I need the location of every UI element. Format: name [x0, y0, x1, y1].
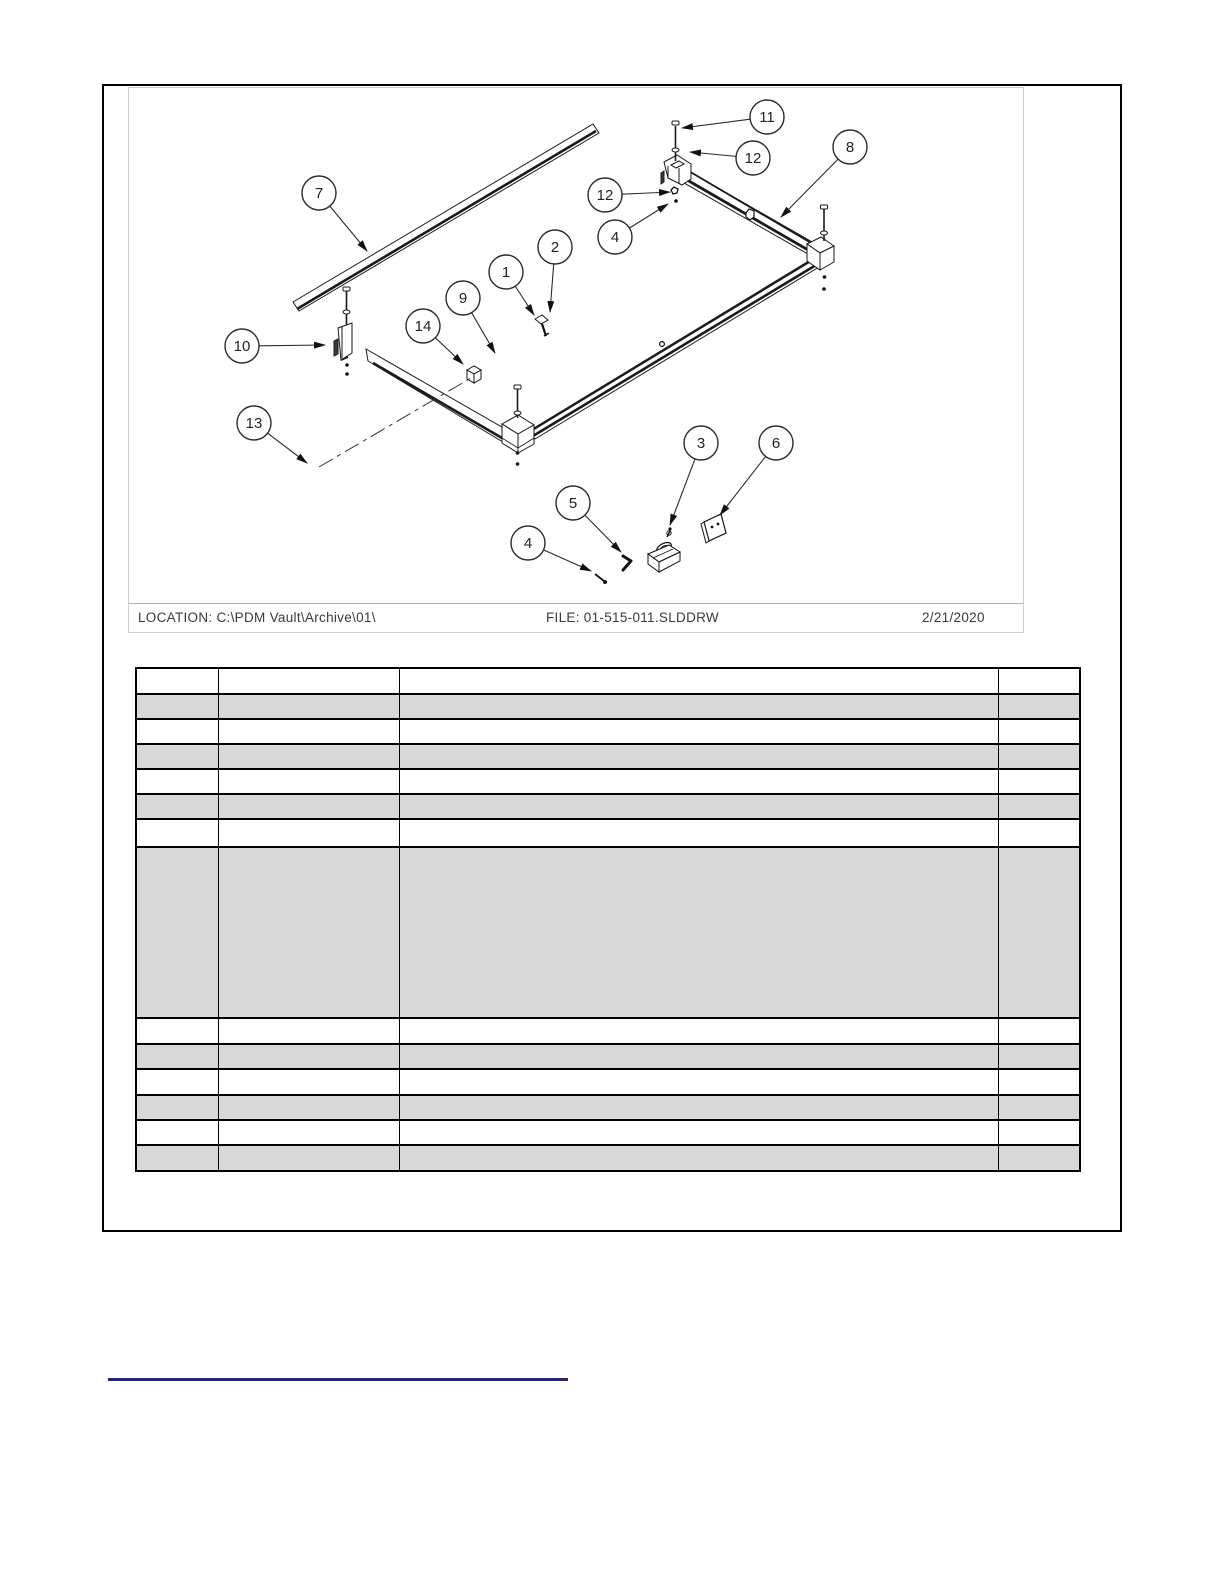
- table-row: [136, 744, 1080, 769]
- weld-nut-rail-8: [746, 209, 754, 220]
- table-row: [136, 794, 1080, 819]
- exploded-view-panel: 7111281242191410133654 LOCATION: C:\PDM …: [128, 87, 1024, 633]
- balloon-number: 5: [569, 495, 577, 512]
- table-cell: [998, 719, 1080, 744]
- rail-bottom-left: [366, 349, 507, 442]
- footer-date: 2/21/2020: [922, 610, 985, 625]
- table-cell: [136, 1145, 218, 1171]
- table-row: [136, 1069, 1080, 1095]
- table-cell: [998, 694, 1080, 719]
- balloon-leader: [781, 159, 838, 217]
- table-cell: [136, 1044, 218, 1069]
- table-cell: [218, 847, 399, 1018]
- latch-3: [648, 527, 680, 572]
- table-row: [136, 1018, 1080, 1044]
- parts-list-table: [135, 667, 1081, 1172]
- manual-page: 7111281242191410133654 LOCATION: C:\PDM …: [0, 0, 1224, 1584]
- table-cell: [136, 794, 218, 819]
- table-cell: [136, 668, 218, 694]
- balloon-number: 8: [846, 139, 854, 156]
- balloon-leader: [435, 338, 463, 364]
- plate-6: [701, 514, 726, 543]
- table-cell: [218, 719, 399, 744]
- table-row: [136, 668, 1080, 694]
- table-cell: [399, 719, 998, 744]
- table-cell: [998, 819, 1080, 847]
- balloon-leader: [550, 264, 554, 312]
- table-cell: [218, 769, 399, 794]
- table-cell: [399, 769, 998, 794]
- table-row: [136, 719, 1080, 744]
- balloon-number: 1: [502, 264, 510, 281]
- table-cell: [218, 1145, 399, 1171]
- fastener-1-2: [535, 315, 549, 336]
- pin-5: [623, 556, 631, 570]
- table-row: [136, 819, 1080, 847]
- balloon-number: 11: [759, 109, 775, 126]
- table-cell: [998, 1018, 1080, 1044]
- table-cell: [136, 847, 218, 1018]
- table-cell: [136, 694, 218, 719]
- balloon-number: 2: [551, 239, 559, 256]
- table-cell: [998, 1120, 1080, 1145]
- table-row: [136, 1044, 1080, 1069]
- table-cell: [399, 847, 998, 1018]
- balloon-leader: [472, 313, 495, 353]
- table-cell: [998, 847, 1080, 1018]
- table-cell: [218, 744, 399, 769]
- table-cell: [998, 668, 1080, 694]
- footnote-rule: [108, 1378, 568, 1381]
- table-cell: [399, 694, 998, 719]
- table-cell: [136, 819, 218, 847]
- table-cell: [399, 1120, 998, 1145]
- table-row: [136, 694, 1080, 719]
- block-14-9: [467, 366, 481, 383]
- rail-bottom-right: [529, 259, 819, 439]
- balloon-leader: [629, 204, 668, 228]
- balloon-number: 12: [597, 187, 614, 204]
- table-cell: [399, 1018, 998, 1044]
- table-cell: [998, 794, 1080, 819]
- table-cell: [399, 744, 998, 769]
- table-cell: [218, 1044, 399, 1069]
- nut-12-left: [671, 187, 678, 203]
- balloon-leader: [720, 456, 766, 515]
- table-cell: [218, 794, 399, 819]
- table-row: [136, 1120, 1080, 1145]
- table-cell: [399, 1095, 998, 1120]
- table-cell: [998, 1095, 1080, 1120]
- balloon-leader: [622, 192, 670, 194]
- balloon-number: 6: [772, 435, 780, 452]
- balloon-leader: [682, 119, 750, 128]
- bolt-11: [672, 121, 679, 161]
- footer-filename: FILE: 01-515-011.SLDDRW: [546, 610, 719, 625]
- balloon-leader: [585, 515, 621, 552]
- table-cell: [399, 1044, 998, 1069]
- table-cell: [218, 694, 399, 719]
- balloon-leader: [515, 286, 534, 315]
- table-cell: [218, 1120, 399, 1145]
- weld-nut-rail-bottom: [660, 342, 665, 347]
- table-cell: [218, 668, 399, 694]
- table-cell: [399, 1069, 998, 1095]
- table-cell: [136, 1069, 218, 1095]
- balloon-number: 3: [697, 435, 705, 452]
- balloon-number: 4: [524, 535, 532, 552]
- table-row: [136, 769, 1080, 794]
- balloon-leader: [268, 433, 307, 463]
- table-cell: [998, 744, 1080, 769]
- table-cell: [136, 1095, 218, 1120]
- table-cell: [218, 1018, 399, 1044]
- table-cell: [399, 668, 998, 694]
- bracket-10: [334, 323, 352, 360]
- balloon-number: 13: [246, 415, 263, 432]
- table-cell: [136, 744, 218, 769]
- balloon-leader: [330, 206, 367, 251]
- balloon-leader: [544, 550, 591, 571]
- screw-4: [595, 574, 607, 584]
- balloon-number: 7: [315, 185, 323, 202]
- balloon-number: 4: [611, 229, 619, 246]
- table-cell: [136, 719, 218, 744]
- table-cell: [998, 769, 1080, 794]
- table-cell: [136, 769, 218, 794]
- balloon-number: 12: [745, 150, 762, 167]
- centerline-13: [319, 378, 471, 467]
- exploded-view-diagram: 7111281242191410133654: [129, 88, 1023, 604]
- table-cell: [998, 1145, 1080, 1171]
- footer-location: LOCATION: C:\PDM Vault\Archive\01\: [138, 610, 376, 625]
- table-row: [136, 1095, 1080, 1120]
- balloon-leader: [259, 345, 325, 346]
- table-row: [136, 1145, 1080, 1171]
- table-cell: [399, 1145, 998, 1171]
- table-cell: [218, 1095, 399, 1120]
- table-cell: [399, 794, 998, 819]
- corner-block-front: [502, 415, 534, 453]
- balloon-leader: [670, 459, 695, 525]
- balloon-leader: [690, 152, 736, 156]
- balloon-number: 9: [459, 290, 467, 307]
- table-cell: [998, 1069, 1080, 1095]
- balloon-number: 14: [415, 318, 432, 335]
- balloon-number: 10: [234, 338, 251, 355]
- table-cell: [399, 819, 998, 847]
- table-cell: [218, 1069, 399, 1095]
- table-cell: [218, 819, 399, 847]
- table-cell: [136, 1018, 218, 1044]
- table-cell: [998, 1044, 1080, 1069]
- table-row: [136, 847, 1080, 1018]
- table-cell: [136, 1120, 218, 1145]
- drawing-footer: LOCATION: C:\PDM Vault\Archive\01\ FILE:…: [129, 603, 1023, 632]
